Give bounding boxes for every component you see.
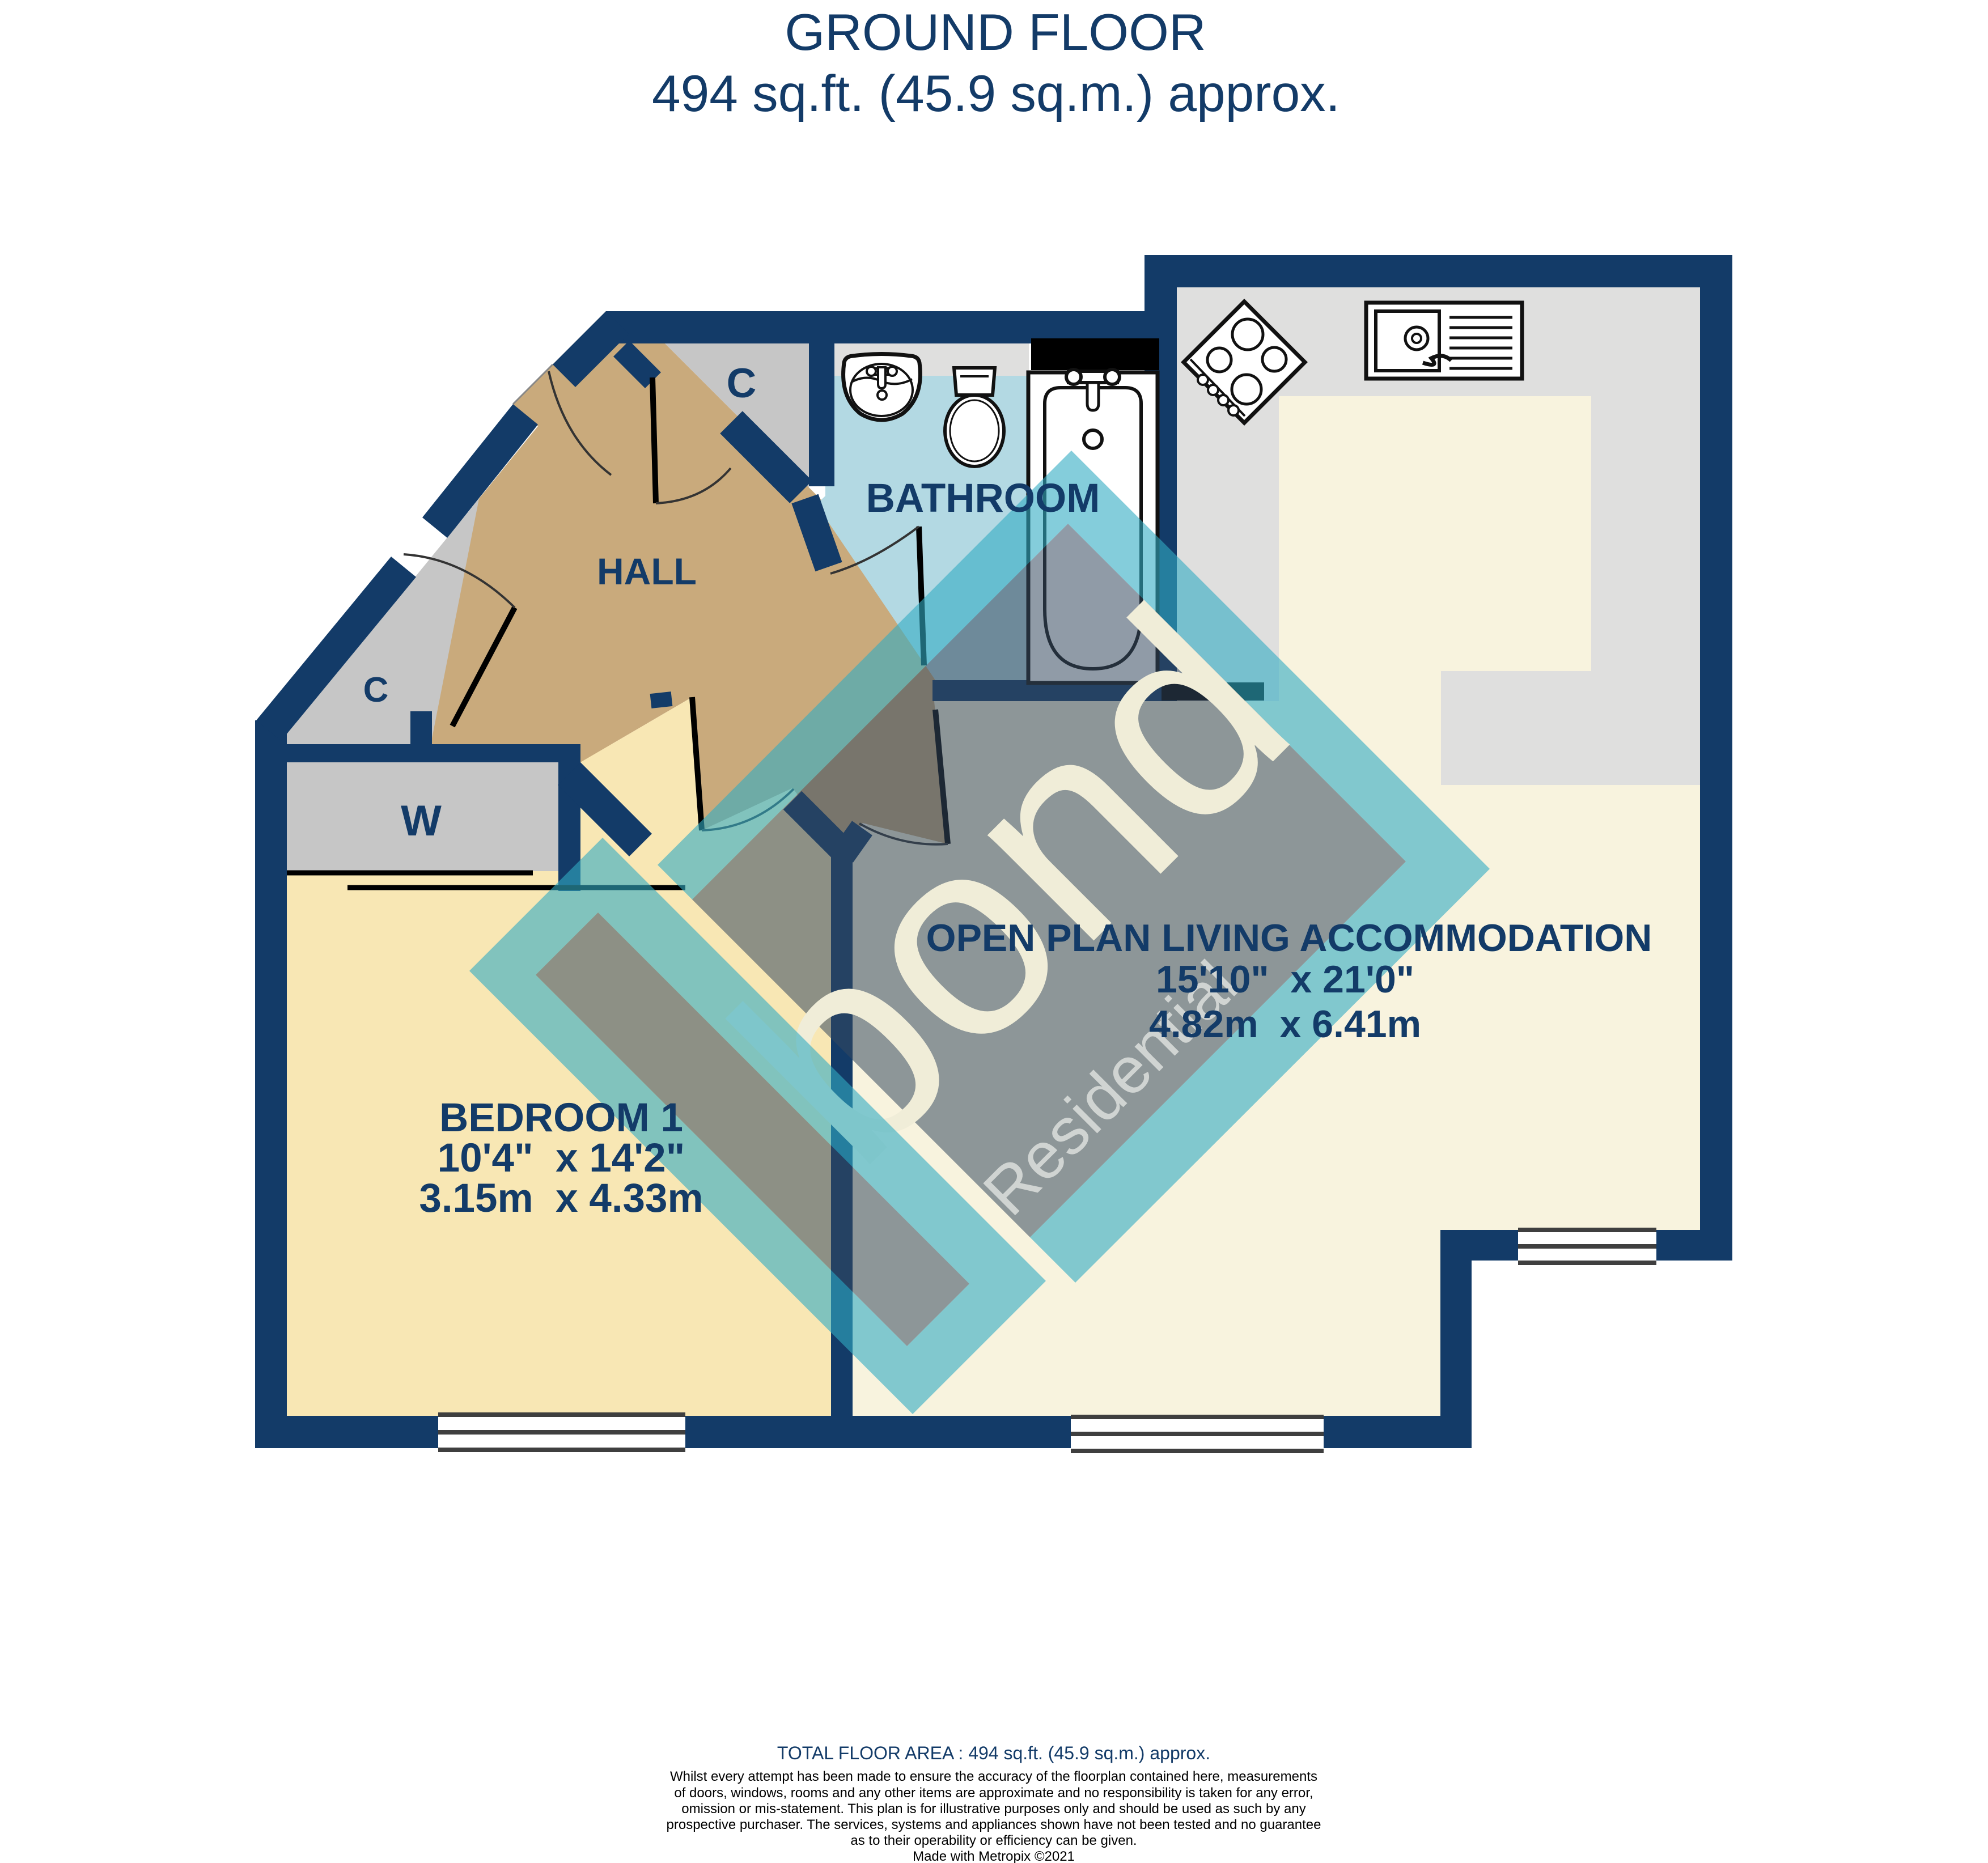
svg-text:as to their operability or eff: as to their operability or efficiency ca…	[850, 1833, 1137, 1848]
svg-text:494 sq.ft. (45.9 sq.m.) approx: 494 sq.ft. (45.9 sq.m.) approx.	[652, 65, 1340, 122]
svg-text:C: C	[363, 670, 389, 710]
svg-text:OPEN PLAN LIVING ACCOMMODATION: OPEN PLAN LIVING ACCOMMODATION	[926, 916, 1652, 960]
svg-text:Whilst every attempt has been: Whilst every attempt has been made to en…	[670, 1769, 1317, 1784]
svg-text:BATHROOM: BATHROOM	[866, 476, 1100, 521]
svg-text:10'4" x 14'2": 10'4" x 14'2"	[438, 1136, 685, 1181]
svg-text:omission or mis-statement. Thi: omission or mis-statement. This plan is …	[681, 1801, 1305, 1817]
svg-text:TOTAL FLOOR AREA : 494 sq.ft.: TOTAL FLOOR AREA : 494 sq.ft. (45.9 sq.m…	[777, 1743, 1210, 1763]
svg-text:C: C	[727, 360, 757, 406]
svg-text:4.82m x 6.41m: 4.82m x 6.41m	[1149, 1003, 1421, 1046]
svg-text:15'10" x 21'0": 15'10" x 21'0"	[1156, 958, 1414, 1001]
svg-text:BEDROOM 1: BEDROOM 1	[439, 1096, 683, 1140]
svg-text:Made with Metropix ©2021: Made with Metropix ©2021	[913, 1849, 1075, 1863]
svg-text:of doors, windows, rooms and a: of doors, windows, rooms and any other i…	[674, 1785, 1313, 1801]
svg-text:GROUND FLOOR: GROUND FLOOR	[785, 4, 1206, 61]
svg-text:prospective purchaser. The ser: prospective purchaser. The services, sys…	[667, 1817, 1321, 1832]
svg-text:W: W	[401, 797, 442, 845]
svg-text:HALL: HALL	[597, 550, 697, 592]
svg-text:3.15m x 4.33m: 3.15m x 4.33m	[419, 1176, 703, 1221]
